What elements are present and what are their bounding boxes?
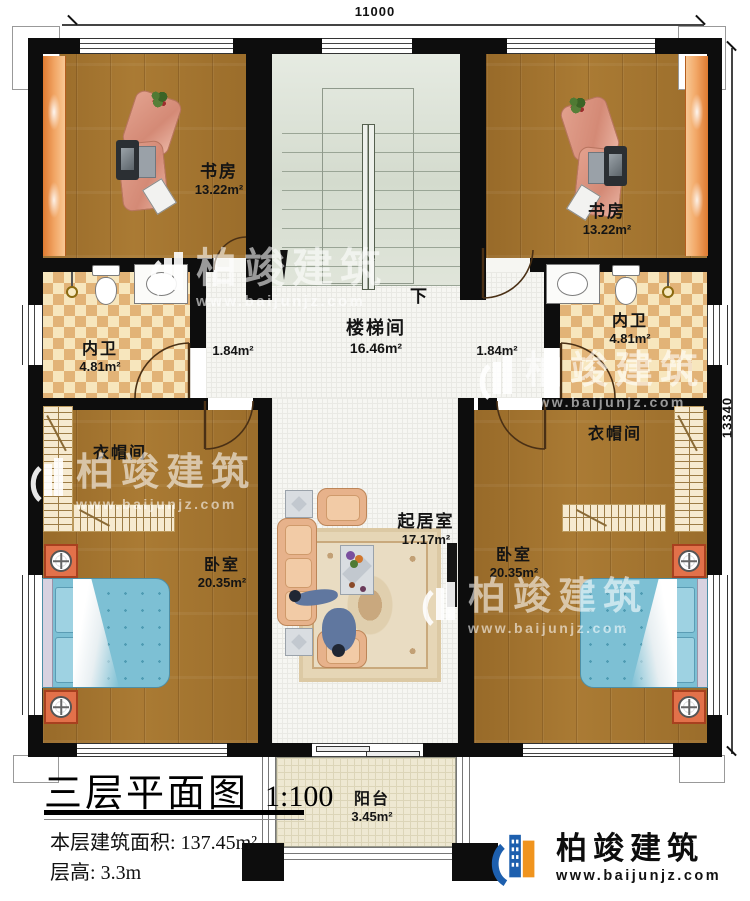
bath-right-lamp-icon (662, 286, 674, 298)
room-name: 楼梯间 (330, 318, 422, 340)
floor-area-label: 本层建筑面积: (50, 832, 176, 854)
study-right-wardrobe (685, 56, 708, 256)
label-living: 起居室 17.17m² (382, 512, 470, 548)
window (507, 38, 655, 54)
window (80, 38, 233, 54)
label-hall-right-area: 1.84m² (468, 343, 526, 358)
floor-height-line: 层高: 3.3m (50, 856, 141, 885)
balcony-rail-right (456, 757, 470, 847)
sliding-door-panel (366, 751, 420, 757)
window (322, 38, 412, 54)
toilet-tank-icon (612, 265, 640, 276)
door-bath-left (134, 342, 190, 399)
window (707, 575, 728, 715)
leaf-decal (350, 560, 358, 568)
table-item (349, 582, 355, 588)
room-name: 卧室 (482, 546, 546, 565)
armchair-top (317, 488, 367, 526)
wall (478, 398, 497, 410)
flower-decal (346, 551, 355, 560)
rack-diagonal (576, 509, 607, 526)
lamp-icon (50, 696, 72, 718)
room-name: 书房 (576, 202, 638, 222)
corner-table (285, 628, 313, 656)
room-name: 阳台 (338, 790, 406, 809)
logo-brand: 柏竣建筑 (556, 833, 721, 864)
window (22, 305, 43, 365)
sink-basin-icon (146, 272, 177, 296)
room-area: 13.22m² (190, 182, 248, 198)
window (22, 575, 43, 715)
room-area: 3.45m² (338, 809, 406, 825)
window (523, 743, 673, 757)
plant-icon (566, 94, 588, 116)
bath-right-lamp-cord (667, 272, 669, 287)
sliding-door-panel (316, 746, 370, 752)
wall-living-right (458, 398, 474, 743)
room-area: 13.22m² (576, 222, 638, 238)
balcony-rail-bottom (283, 847, 453, 860)
floor-area-line: 本层建筑面积: 137.45m² (50, 826, 257, 855)
lamp-icon (678, 696, 700, 718)
wall-living-left (258, 398, 272, 743)
nightstand (672, 690, 706, 724)
wall (423, 743, 523, 757)
logo-building-icon (488, 826, 546, 890)
cushion (285, 525, 312, 555)
pillow (55, 637, 76, 683)
cushion (326, 495, 360, 521)
dim-top: 11000 (340, 4, 410, 19)
nightstand (44, 690, 78, 724)
title-underline-thin (44, 819, 304, 820)
stair-down-label: 下 (410, 282, 427, 307)
bath-left-lamp-icon (66, 286, 78, 298)
door-bedroom-left (204, 400, 254, 450)
room-area: 20.35m² (482, 565, 546, 581)
nightstand (672, 544, 706, 578)
door-study-left (214, 237, 247, 271)
floor-plan-canvas: 下 (0, 0, 750, 901)
room-name: 书房 (190, 162, 248, 182)
rack-diagonal (678, 415, 698, 451)
room-name: 衣帽间 (80, 444, 160, 463)
tv (447, 543, 457, 607)
label-cloak-left: 衣帽间 (80, 444, 160, 463)
label-balcony: 阳台 3.45m² (338, 790, 406, 825)
wall (28, 743, 77, 757)
plan-title: 三层平面图 (44, 762, 249, 817)
sliding-door (312, 743, 423, 757)
bath-left-lamp-cord (71, 272, 73, 287)
floor-area-value: 137.45m² (181, 832, 258, 854)
study-left-monitor (116, 140, 139, 180)
toilet-bowl-icon (95, 277, 117, 305)
study-right-monitor (604, 146, 627, 186)
person-head (289, 590, 301, 602)
bed-headboard (43, 579, 53, 687)
cushion (285, 558, 312, 588)
room-name: 起居室 (382, 512, 470, 532)
label-bedroom-right: 卧室 20.35m² (482, 546, 546, 581)
window (707, 305, 728, 365)
nightstand (44, 544, 78, 578)
wall-stair-left (246, 52, 272, 300)
plan-scale: 1:100 (265, 780, 333, 814)
label-hall-left-area: 1.84m² (204, 343, 262, 358)
room-area: 16.46m² (330, 340, 422, 357)
logo-url: www.baijunjz.com (556, 868, 721, 884)
cloak-right-rack-vertical (674, 406, 704, 532)
wall-bath-left (190, 272, 206, 348)
sink-basin-icon (557, 272, 588, 296)
title-block: 三层平面图 1:100 (44, 762, 333, 817)
toilet-tank-icon (92, 265, 120, 276)
pillow (674, 587, 695, 633)
bed-headboard (697, 579, 707, 687)
door-bath-right (560, 342, 616, 399)
corner-table (285, 490, 313, 518)
cloak-left-rack-horizontal (73, 504, 175, 532)
cloak-left-rack-vertical (43, 406, 73, 532)
door-study-right (482, 246, 534, 301)
title-underline-thick (44, 810, 304, 815)
door-bedroom-right (496, 400, 546, 450)
window (77, 743, 227, 757)
room-name: 衣帽间 (575, 425, 655, 444)
label-study-left: 书房 13.22m² (190, 162, 248, 198)
room-area: 20.35m² (192, 575, 252, 591)
rack-diagonal (47, 415, 67, 451)
stair-center-rail (362, 124, 375, 290)
sofa (277, 518, 317, 626)
lamp-icon (50, 550, 72, 572)
label-cloak-right: 衣帽间 (575, 425, 655, 444)
company-logo: 柏竣建筑 www.baijunjz.com (488, 826, 721, 890)
label-study-right: 书房 13.22m² (576, 202, 638, 238)
cloak-right-rack-horizontal (562, 504, 666, 532)
label-stairwell: 楼梯间 16.46m² (330, 318, 422, 356)
pillow (55, 587, 76, 633)
room-name: 内卫 (598, 312, 662, 331)
table-item (360, 586, 366, 592)
wall (673, 743, 722, 757)
room-area: 4.81m² (68, 359, 132, 375)
dim-line-top (62, 24, 704, 26)
toilet-bowl-icon (615, 277, 637, 305)
label-bath-right: 内卫 4.81m² (598, 312, 662, 347)
room-name: 卧室 (192, 556, 252, 575)
coffee-table (340, 545, 374, 595)
pillow (674, 637, 695, 683)
floor-height-label: 层高: (50, 862, 96, 884)
wall (227, 743, 312, 757)
label-bedroom-left: 卧室 20.35m² (192, 556, 252, 591)
plant-icon (148, 88, 170, 110)
rack-diagonal (79, 509, 110, 526)
study-left-wardrobe (43, 56, 66, 256)
room-area: 4.81m² (598, 331, 662, 347)
label-bath-left: 内卫 4.81m² (68, 340, 132, 375)
corner-bracket-bottom-right (679, 755, 725, 783)
lamp-icon (678, 550, 700, 572)
person-head (332, 644, 345, 657)
bed-right (580, 578, 708, 688)
bed-left (42, 578, 170, 688)
room-area: 17.17m² (382, 532, 470, 548)
room-name: 内卫 (68, 340, 132, 359)
floor-height-value: 3.3m (101, 862, 142, 884)
